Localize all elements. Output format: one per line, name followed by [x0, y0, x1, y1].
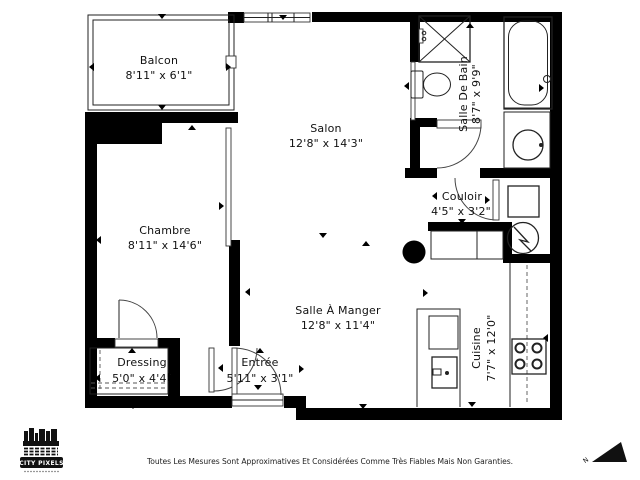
dimension-arrow-icon	[89, 63, 94, 71]
room-dims: 8'11" x 14'6"	[128, 239, 202, 252]
door-chambre	[115, 300, 158, 347]
logo-title: CITY PIXELS	[19, 460, 64, 467]
room-label-chambre: Chambre 8'11" x 14'6"	[128, 224, 202, 252]
dimension-arrow-icon	[423, 289, 428, 297]
dimension-arrow-icon	[468, 402, 476, 407]
room-name: Dressing	[117, 356, 167, 369]
room-dims: 8'7" x 9'9"	[470, 64, 483, 124]
room-label-balcon: Balcon 8'11" x 6'1"	[125, 54, 192, 82]
room-label-salle-a-manger: Salle À Manger 12'8" x 11'4"	[295, 304, 381, 332]
dimension-arrow-icon	[539, 84, 544, 92]
room-name: Salon	[310, 122, 341, 135]
room-name: Salle À Manger	[295, 304, 381, 317]
dimension-arrow-icon	[404, 82, 409, 90]
dimension-arrow-icon	[485, 196, 490, 204]
room-dims: 12'8" x 14'3"	[289, 137, 363, 150]
room-dims: 5'0" x 4'4"	[112, 372, 172, 385]
dimension-arrow-icon	[219, 202, 224, 210]
dimension-arrow-icon	[218, 364, 223, 372]
stove-icon	[512, 339, 546, 374]
logo-stripes	[24, 449, 58, 455]
toilet-icon	[411, 71, 451, 98]
window-icon	[244, 13, 310, 22]
skyline-icon	[23, 428, 59, 446]
utility-closet	[508, 186, 539, 217]
dimension-arrow-icon	[362, 241, 370, 246]
compass-label: N	[582, 456, 591, 465]
dimension-arrow-icon	[432, 192, 437, 200]
room-label-cuisine: Cuisine 7'7" x 12'0"	[470, 314, 498, 381]
disclaimer-text: Toutes Les Mesures Sont Approximatives E…	[146, 457, 513, 466]
bathroom-sink-icon	[504, 108, 550, 168]
shower-icon	[419, 16, 470, 62]
dimension-arrow-icon	[299, 365, 304, 373]
sliding-door-icon	[226, 128, 231, 246]
room-name: Cuisine	[470, 327, 483, 369]
city-pixels-logo: CITY PIXELS	[19, 428, 64, 472]
kitchen-island	[417, 309, 460, 407]
dimension-arrow-icon	[254, 385, 262, 390]
dressing-closet	[90, 348, 168, 394]
room-label-couloir: Couloir 4'5" x 3'2"	[431, 190, 491, 218]
room-dims: 4'5" x 3'2"	[431, 205, 491, 218]
dining-closet	[431, 231, 503, 259]
column-dot	[403, 241, 426, 264]
room-label-salon: Salon 12'8" x 14'3"	[289, 122, 363, 150]
water-heater-icon	[508, 223, 539, 254]
room-dims: 12'8" x 11'4"	[301, 319, 375, 332]
dimension-arrow-icon	[128, 348, 136, 353]
dimension-arrow-icon	[466, 23, 474, 28]
room-dims: 8'11" x 6'1"	[125, 69, 192, 82]
room-dims: 5'11" x 3'1"	[226, 372, 293, 385]
island-sink-icon	[432, 357, 457, 388]
room-dims: 7'7" x 12'0"	[485, 314, 498, 381]
room-name: Balcon	[140, 54, 178, 67]
dimension-arrow-icon	[188, 125, 196, 130]
room-label-dressing: Dressing 5'0" x 4'4"	[112, 356, 172, 385]
bathtub-icon	[504, 17, 552, 109]
room-name: Salle De Bain	[457, 56, 470, 132]
north-arrow-icon	[592, 442, 627, 462]
room-name: Chambre	[139, 224, 191, 237]
compass: N	[582, 442, 627, 465]
dimension-arrow-icon	[319, 233, 327, 238]
room-name: Couloir	[442, 190, 482, 203]
room-label-salle-de-bain: Salle De Bain 8'7" x 9'9"	[457, 56, 483, 132]
dimension-arrow-icon	[245, 288, 250, 296]
dimension-arrow-icon	[158, 105, 166, 110]
floor-plan: Balcon 8'11" x 6'1" Salon 12'8" x 14'3" …	[0, 0, 640, 480]
room-name: Entrée	[241, 356, 278, 369]
kitchen-counter	[510, 263, 527, 407]
dimension-arrow-icon	[158, 14, 166, 19]
